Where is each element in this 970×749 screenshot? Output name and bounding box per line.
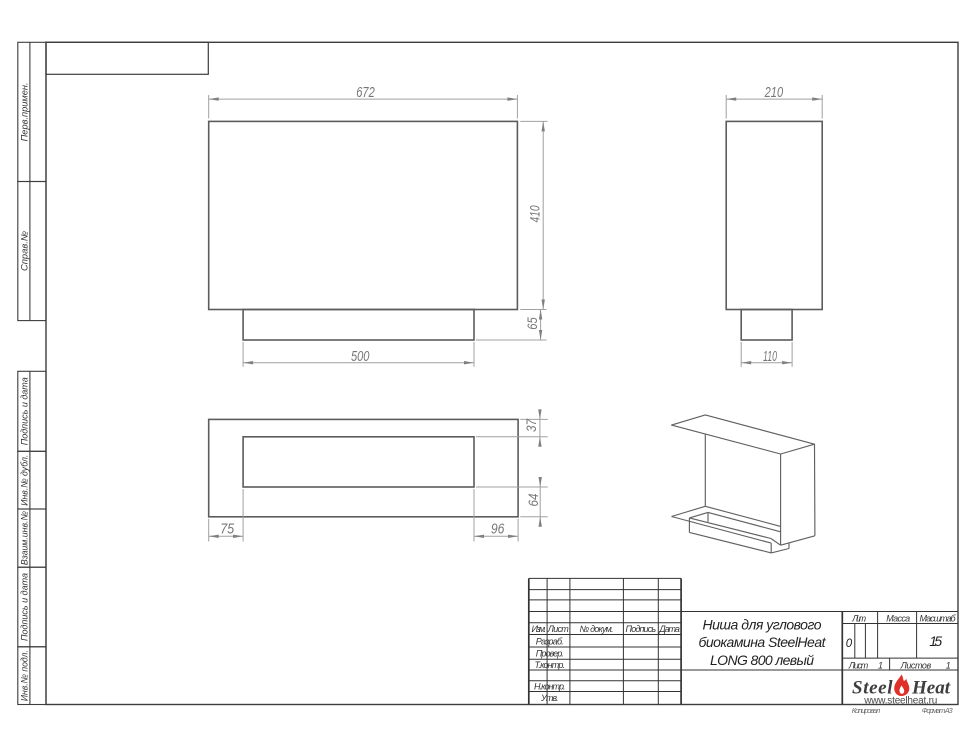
svg-text:110: 110 <box>763 349 777 365</box>
svg-text:410: 410 <box>527 205 542 222</box>
svg-text:Лит.: Лит. <box>851 613 866 623</box>
svg-text:Формат А3: Формат А3 <box>922 706 954 715</box>
svg-text:64: 64 <box>526 493 541 506</box>
svg-text:Провер.: Провер. <box>536 649 564 659</box>
svg-text:Масса: Масса <box>886 613 910 623</box>
svg-text:Подпись и дата: Подпись и дата <box>19 377 30 445</box>
svg-text:37: 37 <box>524 418 539 432</box>
svg-text:Инв.№ подл.: Инв.№ подл. <box>19 650 30 701</box>
svg-text:1: 1 <box>878 660 883 670</box>
svg-text:672: 672 <box>356 85 375 101</box>
svg-text:Дата: Дата <box>658 624 680 634</box>
svg-text:96: 96 <box>491 522 505 538</box>
svg-text:Разраб.: Разраб. <box>536 636 564 646</box>
svg-text:15: 15 <box>929 633 942 649</box>
svg-text:№ докум.: № докум. <box>580 624 614 634</box>
svg-text:Взаим.инв.№: Взаим.инв.№ <box>19 511 30 565</box>
svg-text:210: 210 <box>764 85 783 101</box>
svg-text:Утв.: Утв. <box>540 693 559 703</box>
svg-text:www.steelheat.ru: www.steelheat.ru <box>863 695 937 706</box>
svg-text:Копировал: Копировал <box>852 706 881 715</box>
svg-text:биокамина SteelHeat: биокамина SteelHeat <box>699 634 827 650</box>
svg-text:Листов: Листов <box>900 660 932 670</box>
svg-text:75: 75 <box>220 522 235 538</box>
svg-text:Ниша для углового: Ниша для углового <box>703 616 822 632</box>
svg-text:Лист: Лист <box>848 660 869 670</box>
svg-text:Изм.: Изм. <box>532 624 547 634</box>
svg-text:Т.контр.: Т.контр. <box>535 660 566 670</box>
svg-text:Перв.примен.: Перв.примен. <box>19 82 30 141</box>
svg-text:Инв.№ дубл.: Инв.№ дубл. <box>19 455 30 506</box>
svg-text:0: 0 <box>846 638 853 650</box>
svg-text:65: 65 <box>525 317 540 330</box>
svg-text:1: 1 <box>946 660 951 670</box>
svg-text:Масштаб: Масштаб <box>920 613 957 623</box>
svg-text:Лист: Лист <box>547 624 570 634</box>
svg-text:Справ.№: Справ.№ <box>19 231 30 271</box>
svg-text:Подпись и дата: Подпись и дата <box>19 573 30 641</box>
svg-text:Подпись: Подпись <box>626 624 657 634</box>
svg-text:Н.контр.: Н.контр. <box>534 682 566 692</box>
svg-text:LONG 800 левый: LONG 800 левый <box>710 652 814 668</box>
svg-text:500: 500 <box>351 349 370 365</box>
